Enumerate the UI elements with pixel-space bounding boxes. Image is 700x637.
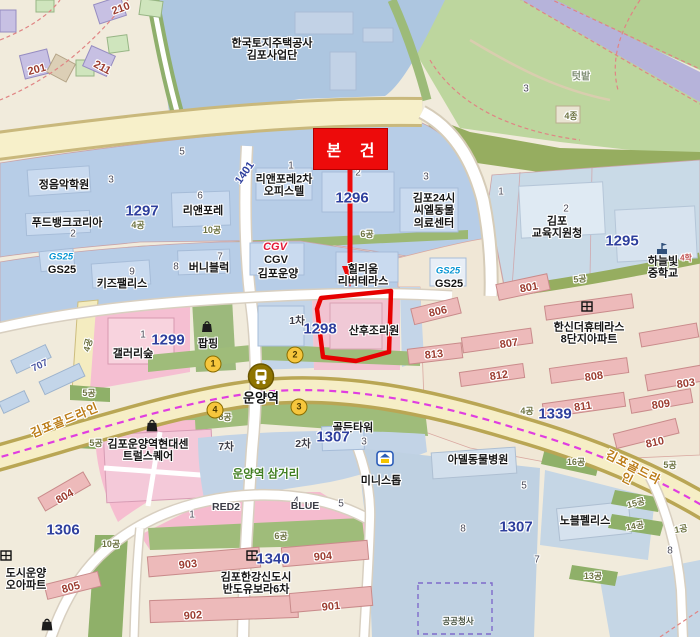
map-base-layer (0, 0, 700, 637)
subject-marker-label: 본 건 (327, 137, 382, 161)
station-exit-3: 3 (291, 399, 308, 416)
field-building (556, 106, 580, 123)
map-canvas[interactable]: 한국토지주택공사 김포사업단210201211텃밭34종5정음악학원3푸드뱅크코… (0, 0, 700, 637)
subject-marker: 본 건 (313, 128, 388, 170)
station-exit-4: 4 (207, 402, 224, 419)
station-exit-2: 2 (287, 347, 304, 364)
station-exit-1: 1 (205, 356, 222, 373)
